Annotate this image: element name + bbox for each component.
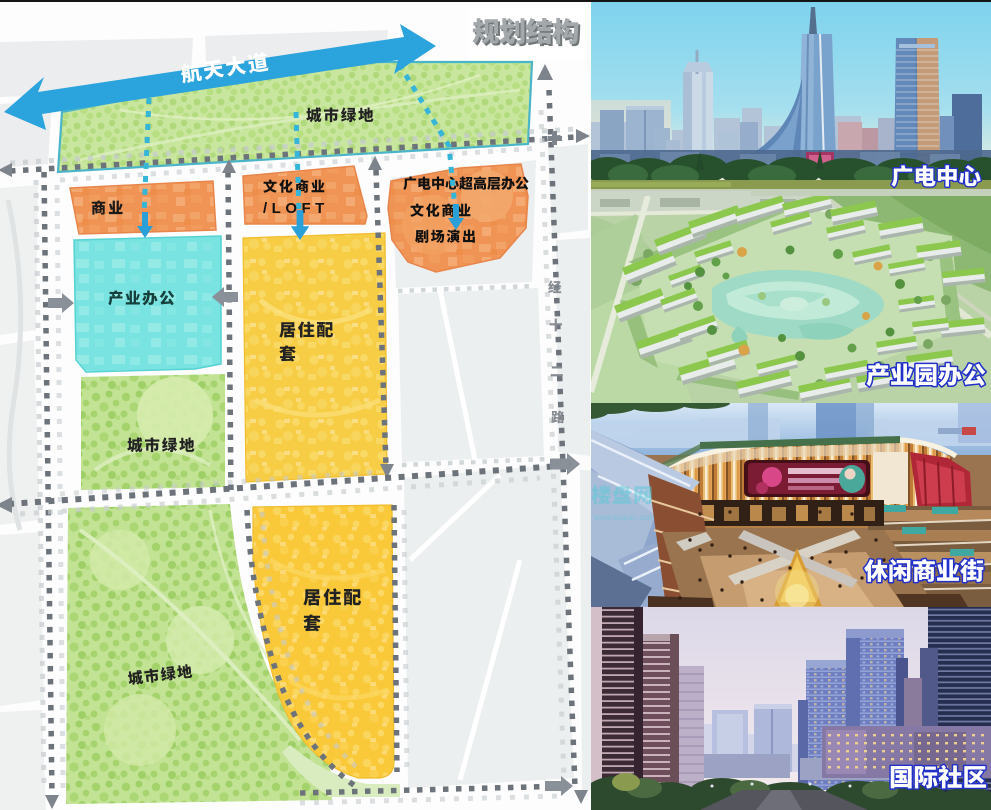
svg-text:www.loupan.com: www.loupan.com <box>593 513 655 522</box>
svg-text:/LOFT: /LOFT <box>263 200 329 217</box>
